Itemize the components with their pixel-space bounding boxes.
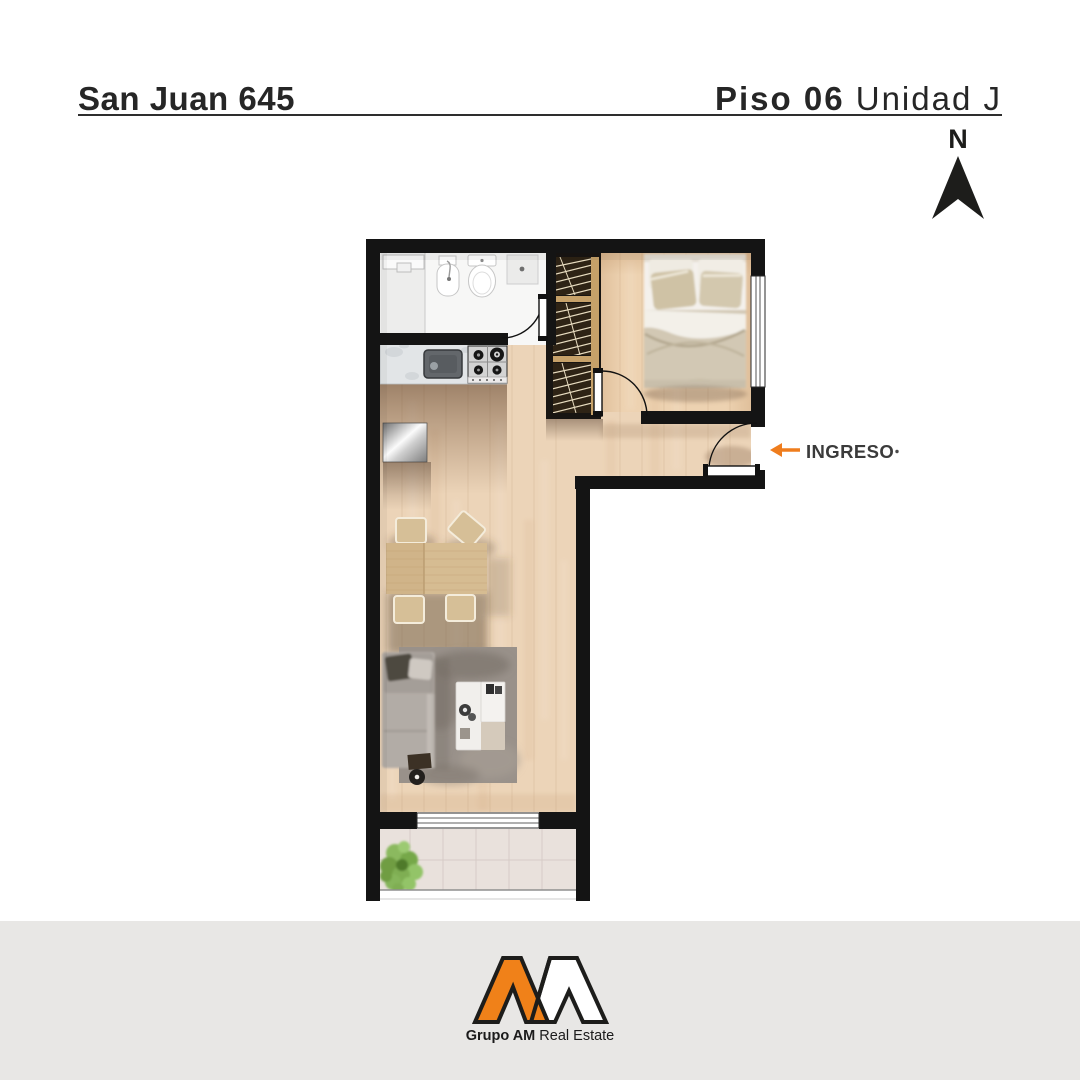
svg-text:INGRESO: INGRESO xyxy=(806,441,894,462)
